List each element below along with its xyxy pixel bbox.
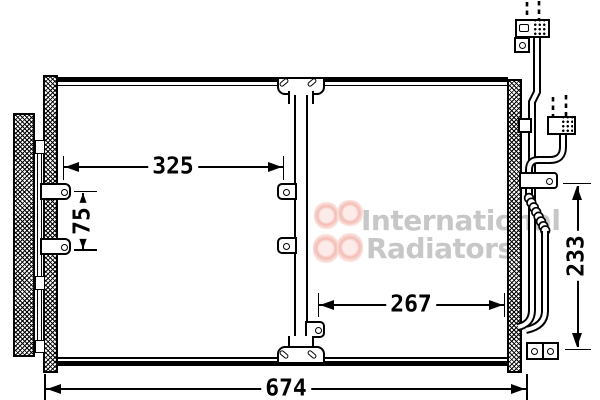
bracket-hole xyxy=(61,189,68,196)
bracket-hole xyxy=(283,243,290,250)
fitting-mid-tab xyxy=(518,118,532,133)
bracket-hole xyxy=(519,42,526,49)
bracket-hole xyxy=(61,244,68,251)
left-bracket-lower xyxy=(40,238,71,255)
bracket-hole xyxy=(315,327,322,334)
center-channel-right-line xyxy=(306,95,308,347)
right-bracket-mid xyxy=(519,172,558,189)
center-tab-upper xyxy=(277,183,297,200)
dimension-label-325: 325 xyxy=(148,156,198,179)
dimension-label-75: 75 xyxy=(72,203,95,239)
right-bracket-bottom xyxy=(526,342,559,360)
dimension-label-674: 674 xyxy=(261,378,311,400)
bracket-hole xyxy=(547,348,554,355)
center-tab-middle xyxy=(277,237,297,254)
fitting-thread xyxy=(532,21,547,35)
fitting-top xyxy=(515,19,550,38)
fitting-mid xyxy=(547,116,576,135)
center-channel-left-line xyxy=(294,95,296,347)
fitting-port xyxy=(519,24,529,32)
bracket-divider xyxy=(542,344,544,358)
dimension-label-233: 233 xyxy=(566,231,589,281)
dimension-label-267: 267 xyxy=(386,294,436,317)
fitting-top-bracket xyxy=(514,37,530,53)
left-bracket-upper xyxy=(40,183,71,200)
bracket-hole xyxy=(283,189,290,196)
bracket-hole xyxy=(546,178,553,185)
fitting-thread xyxy=(560,118,573,132)
diagram-canvas: International Radiators xyxy=(0,0,600,400)
bracket-hole xyxy=(531,348,538,355)
center-bracket-top-neck xyxy=(288,91,314,104)
